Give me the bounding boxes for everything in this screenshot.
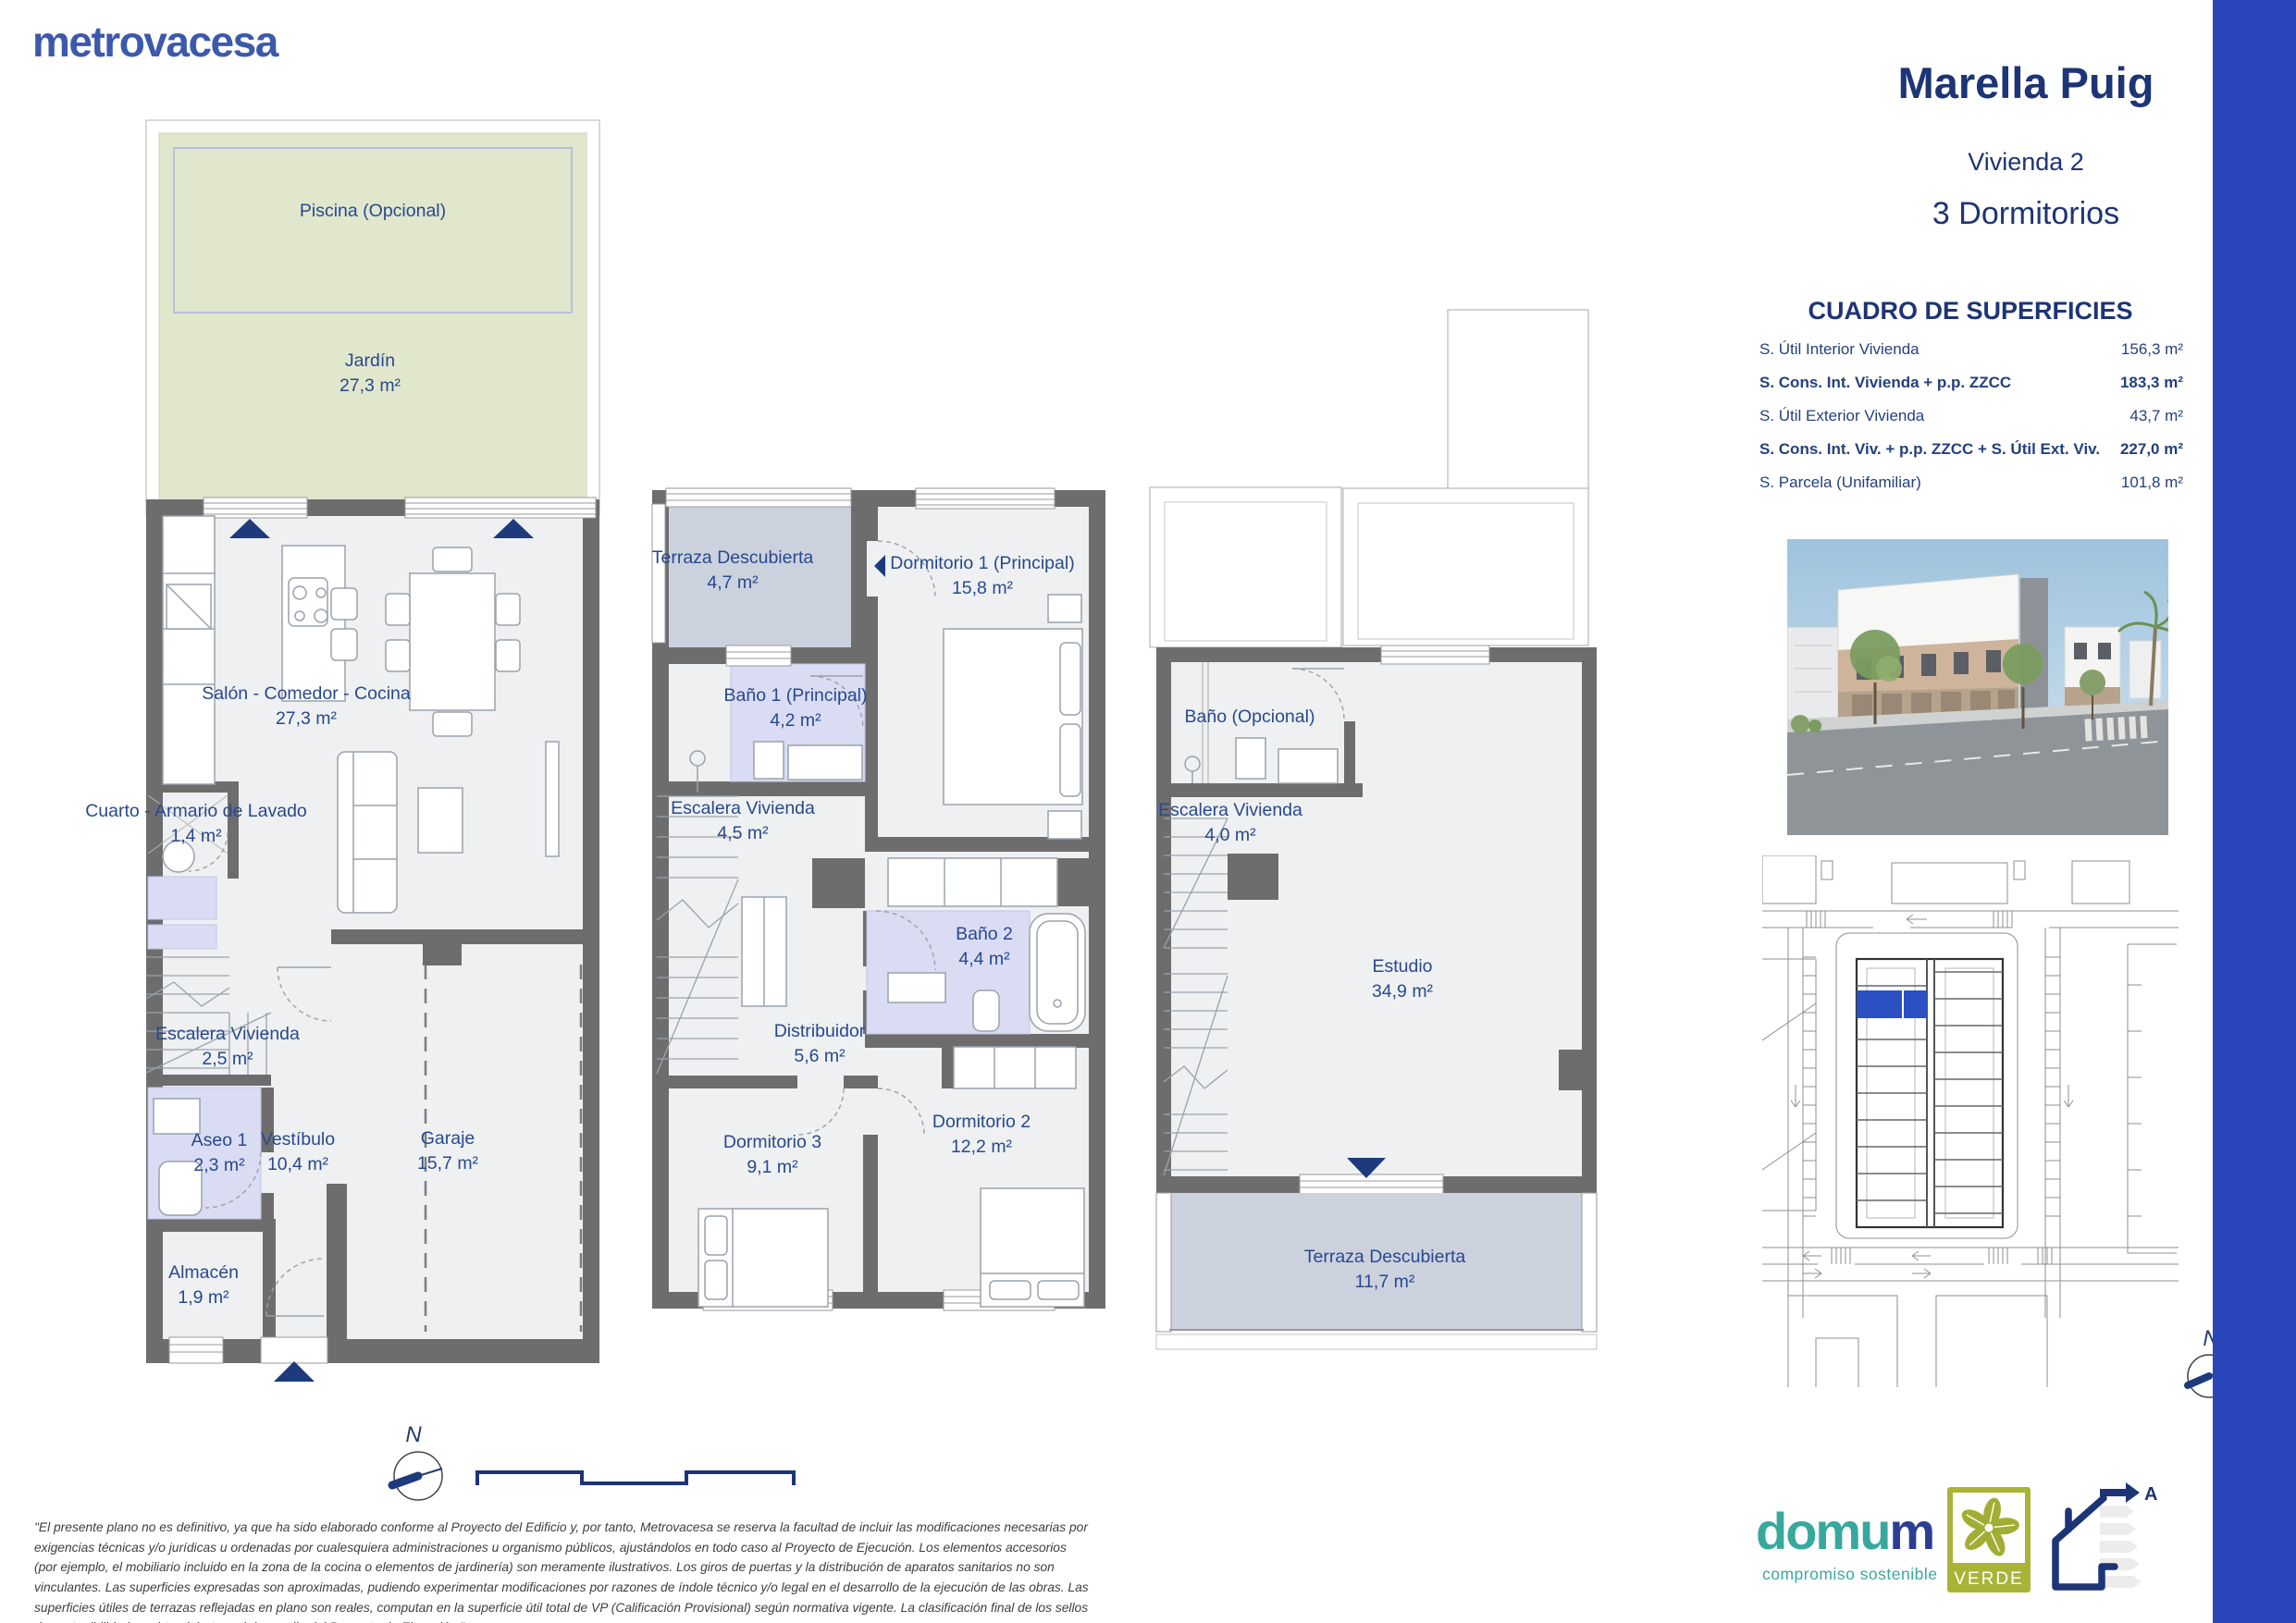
surface-label: S. Útil Exterior Vivienda — [1759, 407, 1924, 425]
room-label-dormitorio1: Dormitorio 1 (Principal)15,8 m² — [890, 551, 1074, 601]
room-label-distribuidor: Distribuidor5,6 m² — [774, 1019, 866, 1069]
surface-row: S. Útil Exterior Vivienda 43,7 m² — [1759, 400, 2183, 433]
room-label-vestibulo: Vestíbulo10,4 m² — [261, 1127, 335, 1177]
surface-value: 227,0 m² — [2120, 440, 2183, 459]
surface-value: 156,3 m² — [2121, 340, 2183, 359]
domum-tagline: compromiso sostenible — [1762, 1565, 1937, 1584]
page-title: Marella Puig — [1898, 57, 2154, 108]
domum-logo: domum — [1756, 1506, 1933, 1557]
room-label-bano2: Baño 24,4 m² — [956, 922, 1013, 972]
room-label-salon: Salón - Comedor - Cocina27,3 m² — [202, 682, 410, 732]
disclaimer-text: "El presente plano no es definitivo, ya … — [34, 1518, 1089, 1623]
floor-plan-ground — [93, 74, 611, 1443]
room-label-lavado: Cuarto - Armario de Lavado1,4 m² — [85, 799, 307, 849]
render-photo — [1787, 539, 2168, 835]
surface-label: S. Parcela (Unifamiliar) — [1759, 473, 1921, 492]
plan-sheet: metrovacesa Marella Puig Vivienda 2 3 Do… — [0, 0, 2296, 1623]
room-label-escalera-p1: Escalera Vivienda4,5 m² — [671, 796, 815, 846]
surface-value: 183,3 m² — [2120, 374, 2183, 392]
room-label-terraza-p1: Terraza Descubierta4,7 m² — [652, 546, 814, 596]
surface-label: S. Cons. Int. Vivienda + p.p. ZZCC — [1759, 374, 2011, 392]
floor-plan-first — [638, 476, 1119, 1327]
room-label-bano-opcional: Baño (Opcional) — [1185, 705, 1315, 730]
energy-rating-letter: A — [2144, 1484, 2157, 1505]
surface-row: S. Cons. Int. Viv. + p.p. ZZCC + S. Útil… — [1759, 433, 2183, 466]
room-label-garaje: Garaje15,7 m² — [417, 1126, 478, 1176]
surface-row: S. Cons. Int. Vivienda + p.p. ZZCC 183,3… — [1759, 366, 2183, 400]
site-plan-highlighted-unit — [1857, 990, 1927, 1018]
right-accent-bar — [2213, 0, 2296, 1623]
room-label-bano1: Baño 1 (Principal)4,2 m² — [724, 683, 868, 733]
surface-value: 101,8 m² — [2121, 473, 2183, 492]
room-label-jardin: Jardín27,3 m² — [339, 349, 401, 399]
room-label-piscina: Piscina (Opcional) — [300, 199, 446, 224]
surface-label: S. Cons. Int. Viv. + p.p. ZZCC + S. Útil… — [1759, 440, 2100, 459]
energy-rating-house-icon: A — [2044, 1478, 2165, 1596]
surface-row: S. Útil Interior Vivienda 156,3 m² — [1759, 333, 2183, 366]
room-label-almacen: Almacén1,9 m² — [168, 1260, 239, 1310]
surface-row: S. Parcela (Unifamiliar) 101,8 m² — [1759, 466, 2183, 499]
bedrooms-subtitle: 3 Dormitorios — [1932, 196, 2119, 232]
site-plan — [1762, 855, 2179, 1387]
surface-label: S. Útil Interior Vivienda — [1759, 340, 1920, 359]
north-compass-icon — [387, 1445, 453, 1511]
room-label-dormitorio3: Dormitorio 39,1 m² — [723, 1130, 821, 1180]
room-label-escalera-p2: Escalera Vivienda4,0 m² — [1158, 798, 1302, 848]
verde-label: VERDE — [1954, 1569, 2023, 1589]
unit-subtitle: Vivienda 2 — [1968, 148, 2084, 177]
room-label-aseo1: Aseo 12,3 m² — [191, 1128, 248, 1178]
room-label-estudio: Estudio34,9 m² — [1372, 954, 1433, 1004]
surface-value: 43,7 m² — [2129, 407, 2183, 425]
room-label-escalera-pb: Escalera Vivienda2,5 m² — [155, 1022, 300, 1072]
surfaces-table-title: CUADRO DE SUPERFICIES — [1808, 297, 2132, 326]
room-label-dormitorio2: Dormitorio 212,2 m² — [932, 1110, 1031, 1160]
scale-bar — [474, 1463, 797, 1489]
metrovacesa-logo: metrovacesa — [32, 17, 278, 67]
room-label-terraza-p2: Terraza Descubierta11,7 m² — [1304, 1245, 1466, 1295]
entrance-arrow-icon — [274, 1361, 315, 1382]
verde-leaf-icon: VERDE — [1945, 1485, 2032, 1594]
